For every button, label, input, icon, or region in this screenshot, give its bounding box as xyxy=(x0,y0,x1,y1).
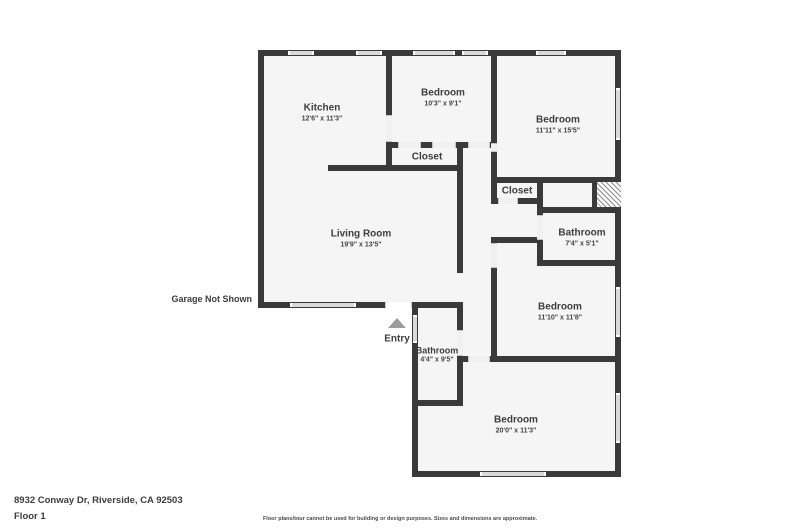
room-name: Bedroom xyxy=(536,115,580,127)
room-label-closet-2: Closet xyxy=(502,185,533,197)
wall xyxy=(412,302,463,308)
room-label-living-room: Living Room 19'9" x 13'5" xyxy=(331,229,392,250)
room-name: Bathroom xyxy=(416,345,459,355)
room-name: Bathroom xyxy=(558,228,605,240)
wall xyxy=(421,142,432,148)
room-dims: 4'4" x 9'5" xyxy=(416,356,459,365)
window xyxy=(616,393,620,443)
door-opening xyxy=(468,142,490,148)
room-dims: 20'0" x 11'3" xyxy=(494,426,538,435)
room-label-bedroom-2: Bedroom 11'11" x 15'5" xyxy=(536,115,580,136)
wall xyxy=(537,260,621,266)
wall xyxy=(491,198,498,204)
window xyxy=(616,287,620,337)
wall xyxy=(491,268,497,362)
room-name: Closet xyxy=(412,151,443,163)
room-dims: 19'9" x 13'5" xyxy=(331,240,392,249)
door-opening xyxy=(432,142,456,148)
room-label-kitchen: Kitchen 12'6" x 11'3" xyxy=(302,103,343,124)
room-name: Bedroom xyxy=(494,415,538,427)
wall xyxy=(491,50,497,143)
window xyxy=(616,88,620,140)
room-dims: 7'4" x 5'1" xyxy=(558,239,605,248)
wall xyxy=(490,356,621,362)
entry-label: Entry xyxy=(384,334,410,345)
door-opening xyxy=(468,356,490,362)
wall xyxy=(412,400,463,406)
window xyxy=(413,51,455,55)
door-opening xyxy=(491,143,497,152)
entry-door-opening xyxy=(385,302,412,308)
room-label-bedroom-1: Bedroom 10'3" x 9'1" xyxy=(421,88,465,109)
floor-area-lower xyxy=(412,302,621,477)
room-label-bathroom-1: Bathroom 7'4" x 5'1" xyxy=(558,228,605,249)
door-opening xyxy=(386,115,392,142)
room-name: Bedroom xyxy=(421,88,465,100)
room-name: Bedroom xyxy=(538,302,582,314)
room-label-bedroom-3: Bedroom 11'10" x 11'8" xyxy=(538,302,582,323)
window xyxy=(290,303,356,307)
wall xyxy=(386,50,392,115)
window xyxy=(413,315,417,343)
address: 8932 Conway Dr, Riverside, CA 92503 xyxy=(14,495,183,506)
floor-label: Floor 1 xyxy=(14,511,46,522)
window xyxy=(356,51,382,55)
garage-note: Garage Not Shown xyxy=(140,294,252,304)
door-opening xyxy=(498,198,518,204)
window xyxy=(462,51,488,55)
wall xyxy=(328,165,463,171)
room-name: Closet xyxy=(502,185,533,197)
wall xyxy=(491,237,537,243)
hatched-area xyxy=(592,177,621,212)
door-opening xyxy=(491,243,497,268)
room-dims: 12'6" x 11'3" xyxy=(302,114,343,123)
wall xyxy=(457,302,463,330)
door-opening xyxy=(537,215,543,240)
door-opening xyxy=(398,142,421,148)
room-name: Kitchen xyxy=(302,103,343,115)
room-name: Living Room xyxy=(331,229,392,241)
room-label-bathroom-2: Bathroom 4'4" x 9'5" xyxy=(416,345,459,364)
wall xyxy=(258,50,264,308)
room-label-bedroom-4: Bedroom 20'0" x 11'3" xyxy=(494,415,538,436)
window xyxy=(288,51,314,55)
disclaimer: Floor plans/tour cannot be used for buil… xyxy=(263,516,537,522)
room-dims: 10'3" x 9'1" xyxy=(421,99,465,108)
room-dims: 11'10" x 11'8" xyxy=(538,313,582,322)
room-label-closet-1: Closet xyxy=(412,151,443,163)
window xyxy=(536,51,566,55)
floor-plan: Kitchen 12'6" x 11'3" Bedroom 10'3" x 9'… xyxy=(0,0,800,530)
entry-arrow-icon xyxy=(388,318,406,328)
room-dims: 11'11" x 15'5" xyxy=(536,126,580,135)
wall xyxy=(457,165,463,273)
window xyxy=(480,472,546,476)
wall xyxy=(457,356,468,362)
